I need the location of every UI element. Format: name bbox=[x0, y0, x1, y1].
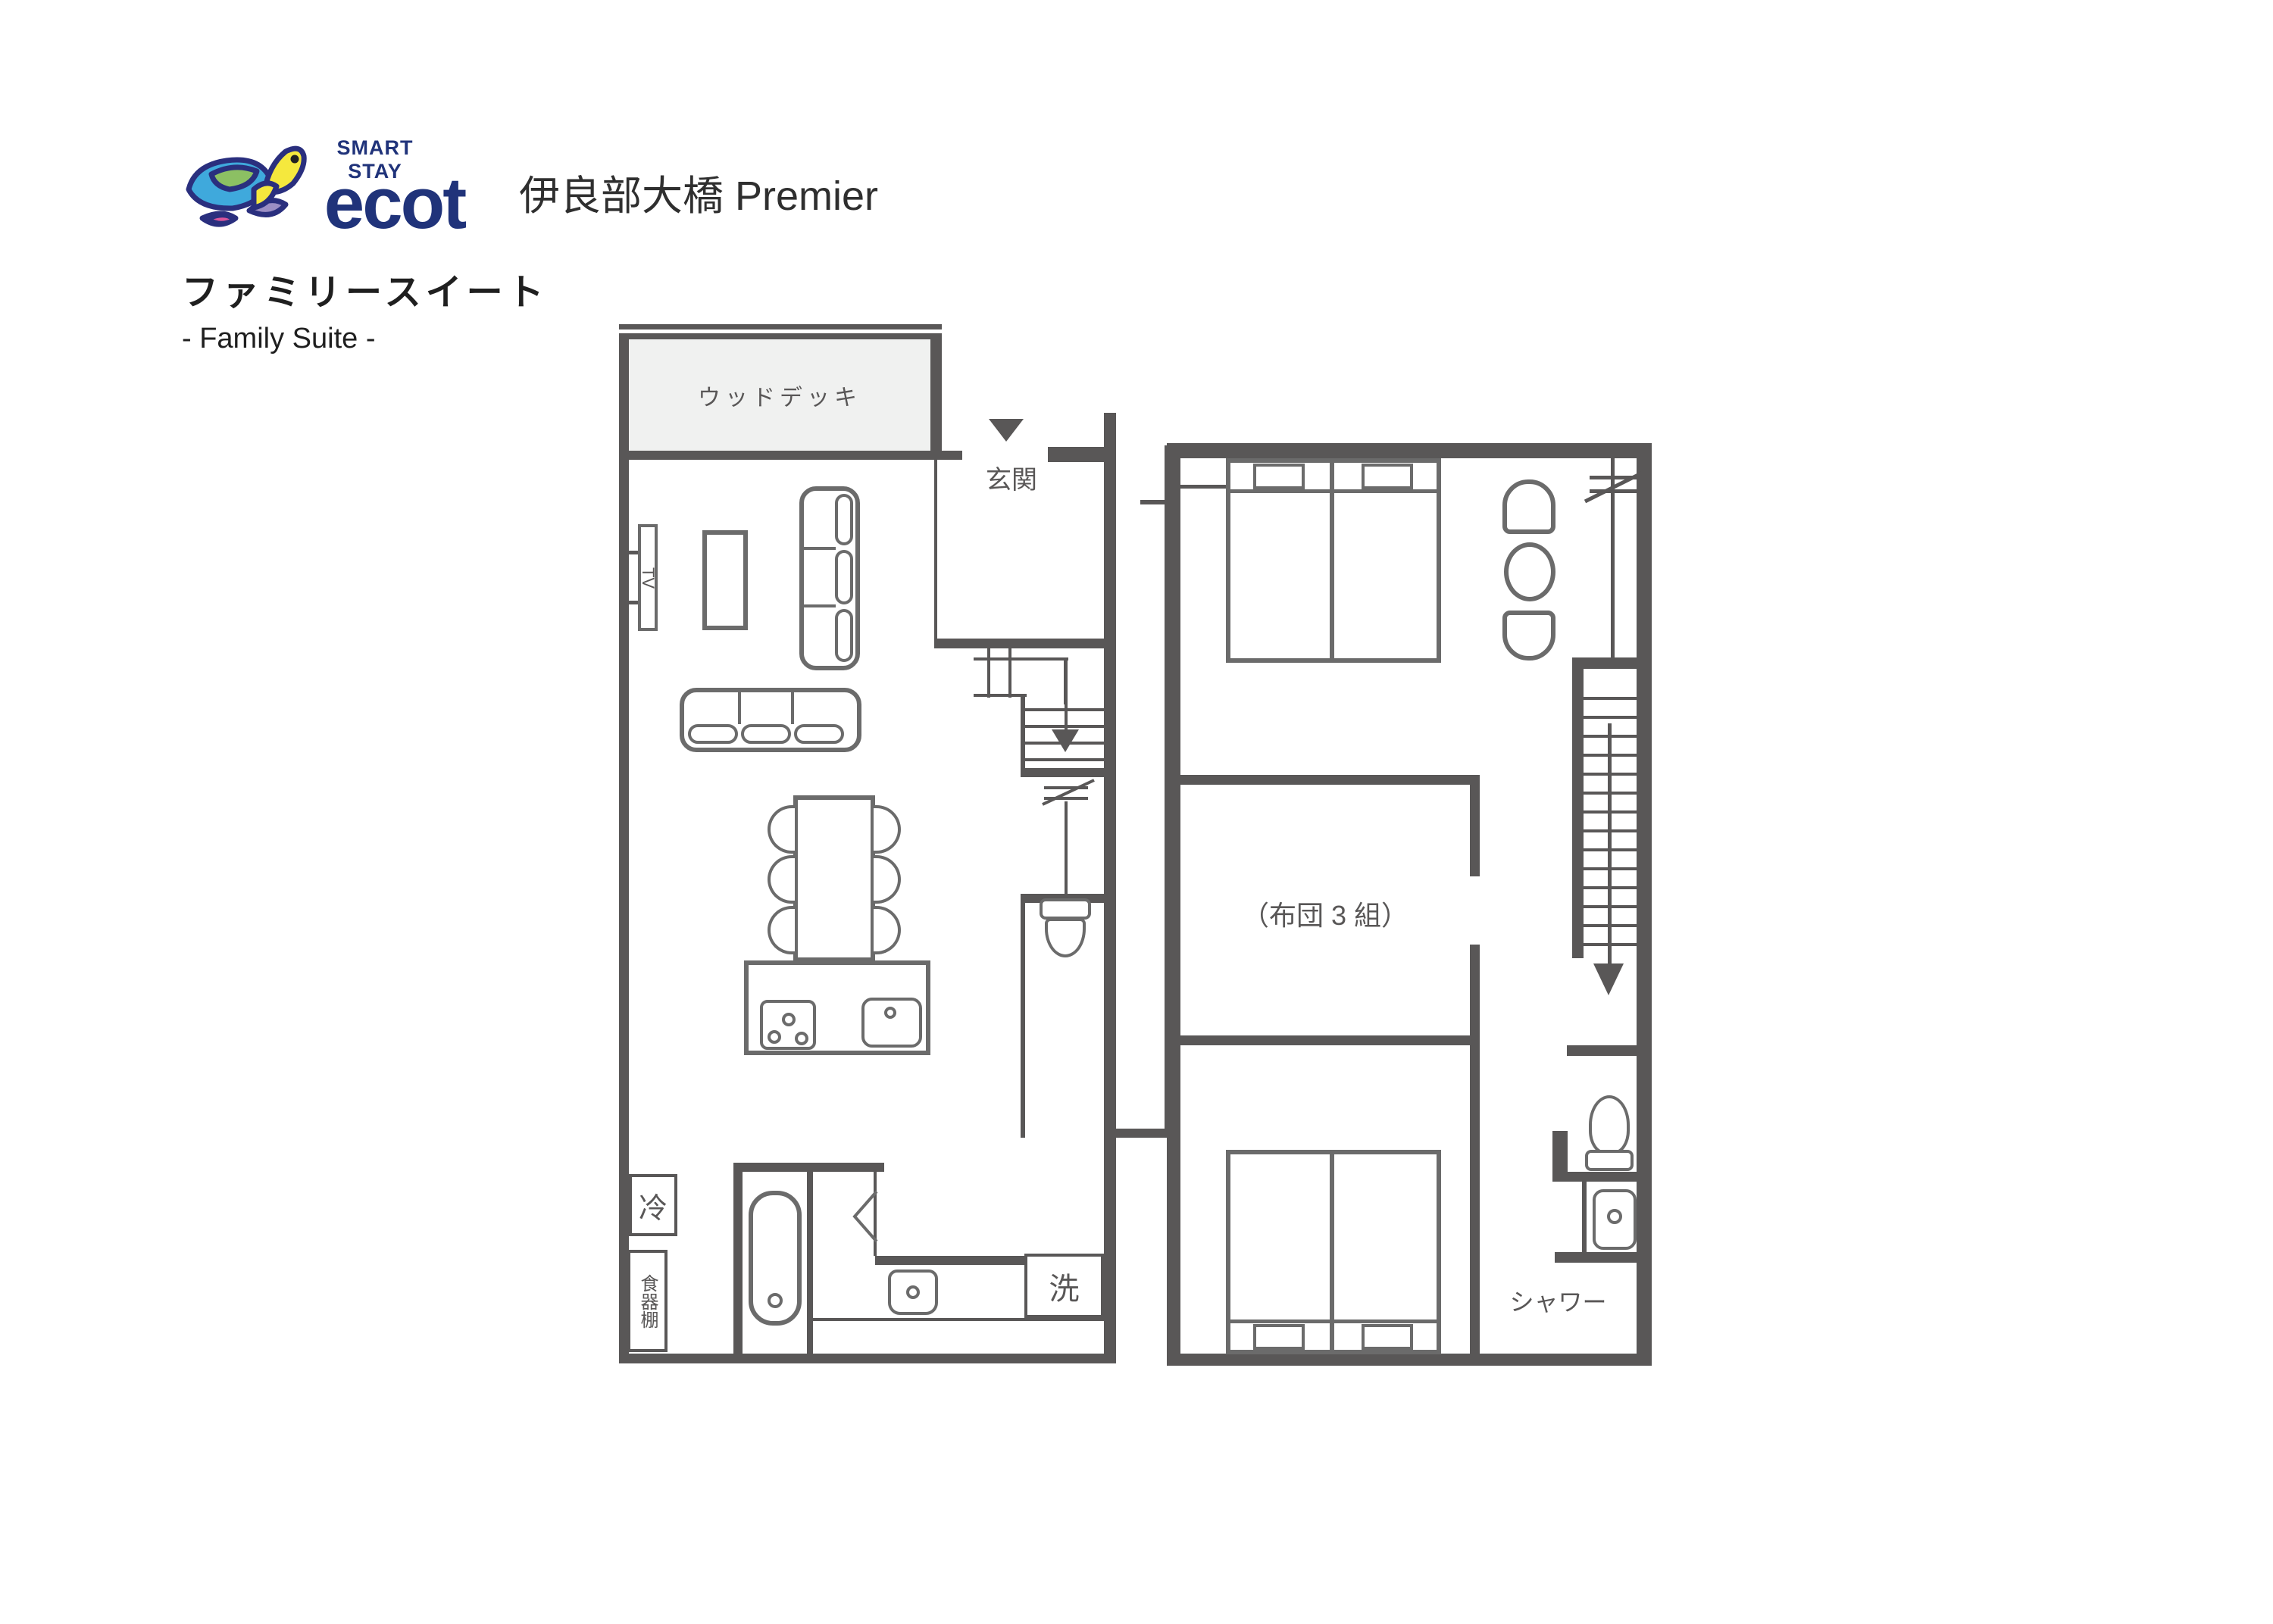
railing-line bbox=[987, 639, 990, 698]
pillow bbox=[1362, 464, 1413, 489]
washer-label: 洗 bbox=[1024, 1254, 1104, 1318]
washbasin-drain bbox=[906, 1285, 920, 1299]
door-swing-line bbox=[1043, 780, 1094, 804]
railing-line bbox=[974, 694, 1027, 697]
door-leaf-line bbox=[1065, 801, 1068, 894]
sofa-divider bbox=[738, 692, 741, 724]
sofa-cushion bbox=[688, 724, 738, 744]
toilet-seat bbox=[1585, 1150, 1634, 1171]
sink-faucet bbox=[884, 1007, 896, 1019]
wall bbox=[807, 1163, 813, 1354]
wall bbox=[1021, 894, 1025, 1138]
kitchen-sink-icon bbox=[861, 998, 922, 1048]
dining-chair bbox=[768, 906, 795, 954]
wall bbox=[1470, 945, 1480, 1354]
washbasin-drain bbox=[1607, 1209, 1622, 1224]
railing-line bbox=[1008, 639, 1011, 698]
sofa-cushion bbox=[794, 724, 844, 744]
pillow bbox=[1253, 464, 1305, 489]
wall bbox=[1104, 413, 1116, 1363]
bed-headboard-line bbox=[1226, 1319, 1441, 1323]
room-name-ja: ファミリースイート bbox=[182, 267, 606, 311]
toilet-icon bbox=[1589, 1095, 1630, 1154]
stair-tread bbox=[1584, 697, 1637, 700]
dining-chair bbox=[874, 805, 901, 854]
stove-burner bbox=[768, 1030, 781, 1044]
floor-plan-page: SMART STAY ecot 伊良部大橋 Premier ファミリースイート … bbox=[0, 0, 2273, 1624]
wood-deck-label: ウッドデッキ bbox=[629, 339, 930, 451]
door-mark bbox=[1044, 786, 1088, 789]
sofa-divider bbox=[804, 604, 836, 607]
door-leaf-line bbox=[1611, 458, 1615, 657]
wall bbox=[619, 451, 962, 460]
futon-room-label: （布団 3 組） bbox=[1180, 895, 1470, 932]
dining-chair bbox=[768, 855, 795, 904]
toilet-tank bbox=[1040, 898, 1091, 920]
dining-chair bbox=[874, 855, 901, 904]
wall bbox=[1572, 657, 1652, 669]
door-mark bbox=[1044, 797, 1088, 800]
side-table bbox=[702, 530, 748, 630]
wall bbox=[1180, 1035, 1480, 1045]
fridge-label: 冷 bbox=[629, 1174, 677, 1236]
wall bbox=[1552, 1172, 1652, 1182]
sofa-cushion bbox=[835, 550, 853, 604]
sofa-cushion bbox=[835, 494, 853, 545]
wall bbox=[875, 1256, 1024, 1265]
wall bbox=[1167, 1354, 1652, 1366]
stairs-down-arrow-shaft bbox=[1608, 723, 1612, 964]
wall bbox=[1180, 775, 1480, 785]
room-divider-line bbox=[813, 1318, 1104, 1321]
wall bbox=[1582, 1182, 1587, 1257]
sofa-cushion bbox=[835, 609, 853, 662]
stairs-down-arrow-shaft bbox=[1065, 661, 1068, 731]
wall bbox=[1116, 1129, 1165, 1138]
stairs-down-arrow-icon bbox=[1593, 963, 1624, 995]
wall bbox=[934, 639, 1104, 648]
wall bbox=[619, 333, 629, 1363]
chair bbox=[1502, 479, 1555, 534]
tv-label: TV bbox=[623, 561, 673, 595]
railing-line bbox=[974, 657, 1068, 661]
wall bbox=[1637, 443, 1652, 1366]
stairs-down-arrow-icon bbox=[1052, 729, 1079, 752]
wall bbox=[1555, 1252, 1652, 1263]
room-name-en: - Family Suite - bbox=[182, 321, 455, 356]
sofa-divider bbox=[804, 547, 836, 550]
page-title: 伊良部大橋 Premier bbox=[519, 165, 928, 218]
wall bbox=[619, 324, 942, 329]
stair-tread bbox=[1025, 758, 1104, 761]
wall bbox=[1567, 1045, 1652, 1056]
stove-burner bbox=[782, 1013, 796, 1026]
pillow bbox=[1362, 1324, 1413, 1350]
sofa-divider bbox=[791, 692, 794, 724]
stove-burner bbox=[795, 1032, 808, 1045]
wall bbox=[1572, 657, 1584, 958]
wall-tick bbox=[1140, 500, 1165, 504]
wall bbox=[733, 1163, 743, 1354]
wall bbox=[1470, 775, 1480, 876]
shower-label: シャワー bbox=[1480, 1284, 1637, 1317]
room-divider-line bbox=[934, 460, 937, 639]
wall bbox=[619, 1354, 1116, 1363]
tv-mount-line bbox=[629, 601, 638, 604]
logo-brand: ecot bbox=[302, 162, 487, 245]
dining-table bbox=[793, 795, 875, 962]
toilet-icon bbox=[1045, 918, 1086, 957]
bathtub-drain bbox=[768, 1293, 783, 1308]
pillow bbox=[1253, 1324, 1305, 1350]
entrance-arrow-icon bbox=[989, 419, 1024, 442]
wall bbox=[1167, 443, 1652, 458]
wall bbox=[930, 333, 942, 460]
dining-chair bbox=[874, 906, 901, 954]
sofa-cushion bbox=[741, 724, 791, 744]
stair-tread bbox=[1584, 716, 1637, 719]
wall-tick bbox=[1180, 485, 1226, 489]
room-divider-line bbox=[874, 1172, 877, 1256]
tv-mount-line bbox=[629, 551, 638, 554]
chair bbox=[1502, 611, 1555, 661]
entrance-label: 玄関 bbox=[970, 461, 1053, 494]
wall bbox=[1167, 443, 1180, 1366]
wall bbox=[1021, 768, 1104, 777]
bed-headboard-line bbox=[1226, 489, 1441, 493]
cupboard-label: 食器棚 bbox=[627, 1250, 668, 1352]
round-table bbox=[1504, 542, 1555, 601]
dining-chair bbox=[768, 805, 795, 854]
bed-divider bbox=[1330, 1150, 1334, 1354]
